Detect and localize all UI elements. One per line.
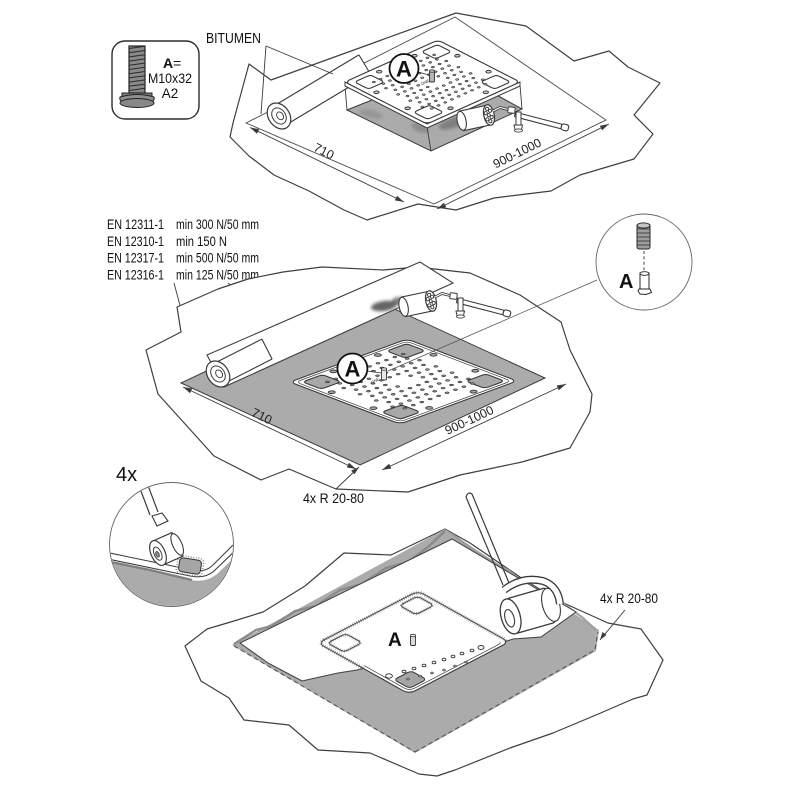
svg-text:4x: 4x [116,464,137,486]
svg-text:EN 12316-1: EN 12316-1 [107,267,164,282]
svg-text:A2: A2 [162,86,179,101]
svg-text:A: A [396,57,412,82]
svg-text:min 150 N: min 150 N [176,234,227,249]
svg-text:A: A [619,271,633,293]
svg-text:A: A [388,630,402,651]
svg-text:M10x32: M10x32 [148,71,192,86]
svg-text:A=: A= [163,55,181,71]
svg-text:4x R 20-80: 4x R 20-80 [303,491,364,506]
svg-text:min 300 N/50 mm: min 300 N/50 mm [176,217,259,232]
svg-text:A: A [344,357,360,382]
svg-text:EN 12310-1: EN 12310-1 [107,234,164,249]
svg-text:BITUMEN: BITUMEN [206,31,261,47]
svg-text:4x R 20-80: 4x R 20-80 [600,591,658,606]
svg-text:EN 12317-1: EN 12317-1 [107,251,164,266]
svg-text:min 500 N/50 mm: min 500 N/50 mm [176,251,259,266]
svg-text:EN 12311-1: EN 12311-1 [107,217,164,232]
